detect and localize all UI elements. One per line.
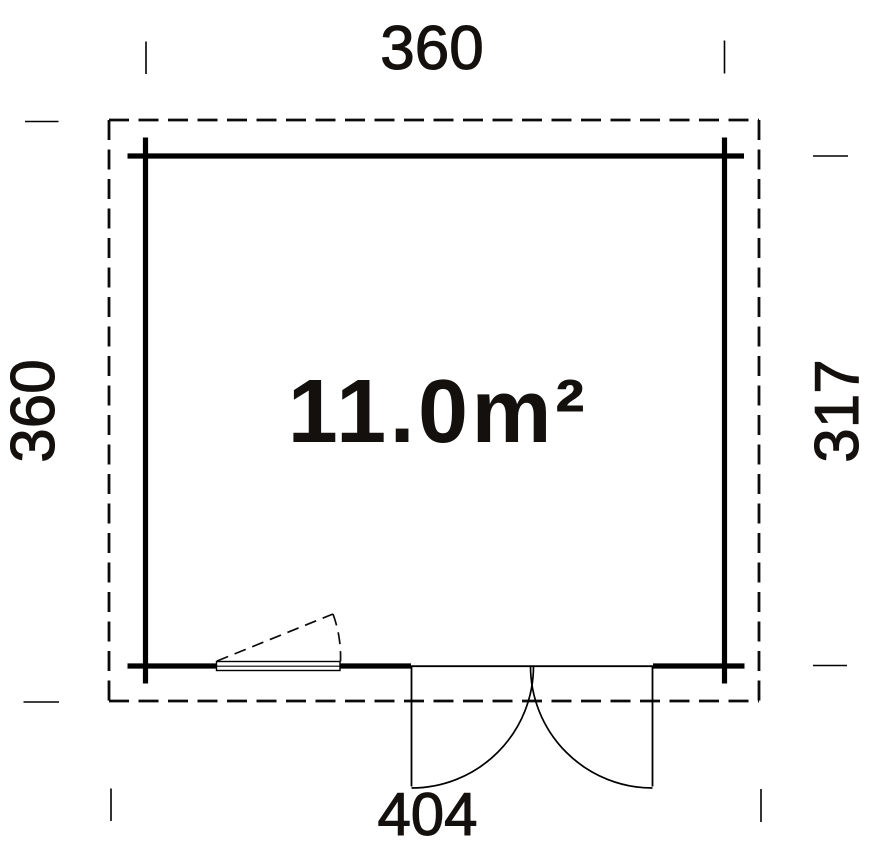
- svg-text:317: 317: [803, 359, 872, 462]
- svg-text:404: 404: [377, 781, 477, 848]
- svg-text:360: 360: [380, 14, 483, 83]
- svg-text:11.0m²: 11.0m²: [288, 362, 589, 462]
- svg-text:360: 360: [0, 359, 68, 462]
